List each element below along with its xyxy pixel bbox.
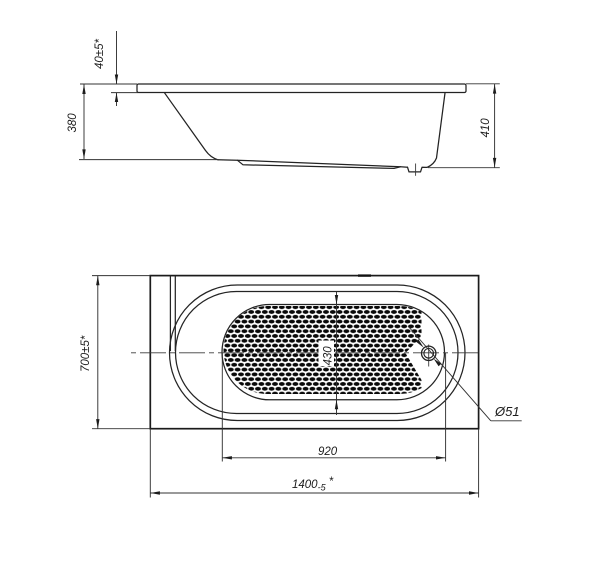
svg-text:920: 920 xyxy=(318,446,338,458)
svg-text:Ø51: Ø51 xyxy=(494,404,520,419)
svg-text:40±5*: 40±5* xyxy=(94,39,106,69)
svg-text:380: 380 xyxy=(67,113,79,133)
svg-text:430: 430 xyxy=(323,346,335,366)
svg-text:700±5*: 700±5* xyxy=(80,335,92,372)
svg-text:410: 410 xyxy=(480,118,492,138)
